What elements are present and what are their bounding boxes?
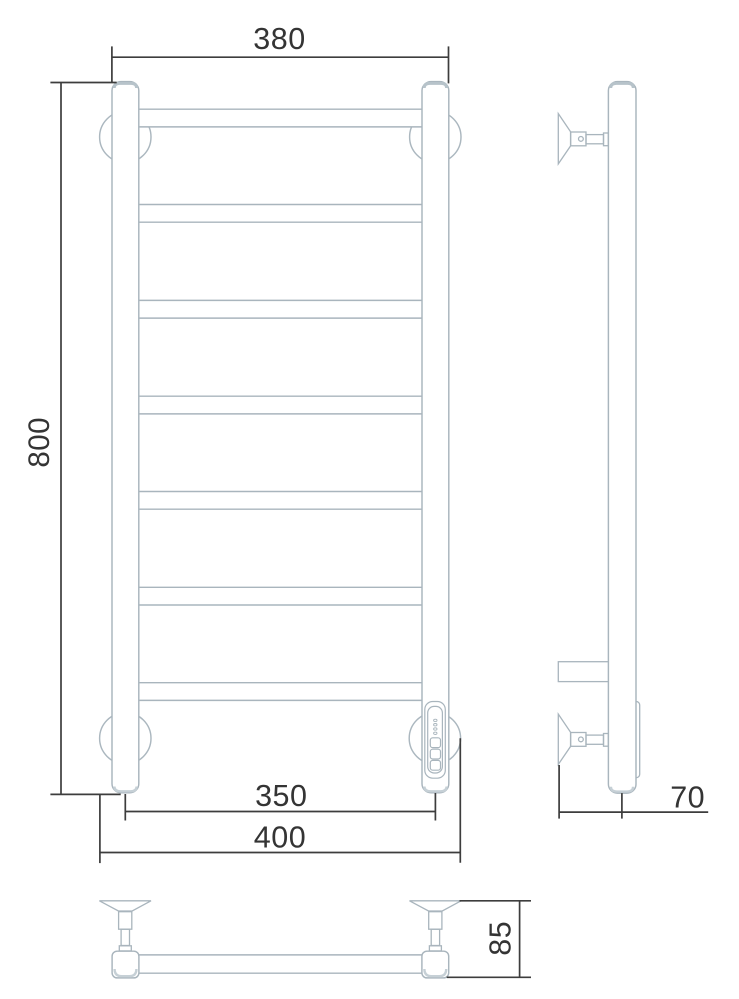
svg-text:70: 70 bbox=[670, 780, 705, 814]
svg-text:800: 800 bbox=[23, 417, 56, 468]
svg-text:400: 400 bbox=[254, 821, 306, 855]
svg-text:350: 350 bbox=[255, 779, 307, 813]
svg-text:380: 380 bbox=[253, 22, 305, 56]
svg-text:85: 85 bbox=[484, 921, 518, 956]
